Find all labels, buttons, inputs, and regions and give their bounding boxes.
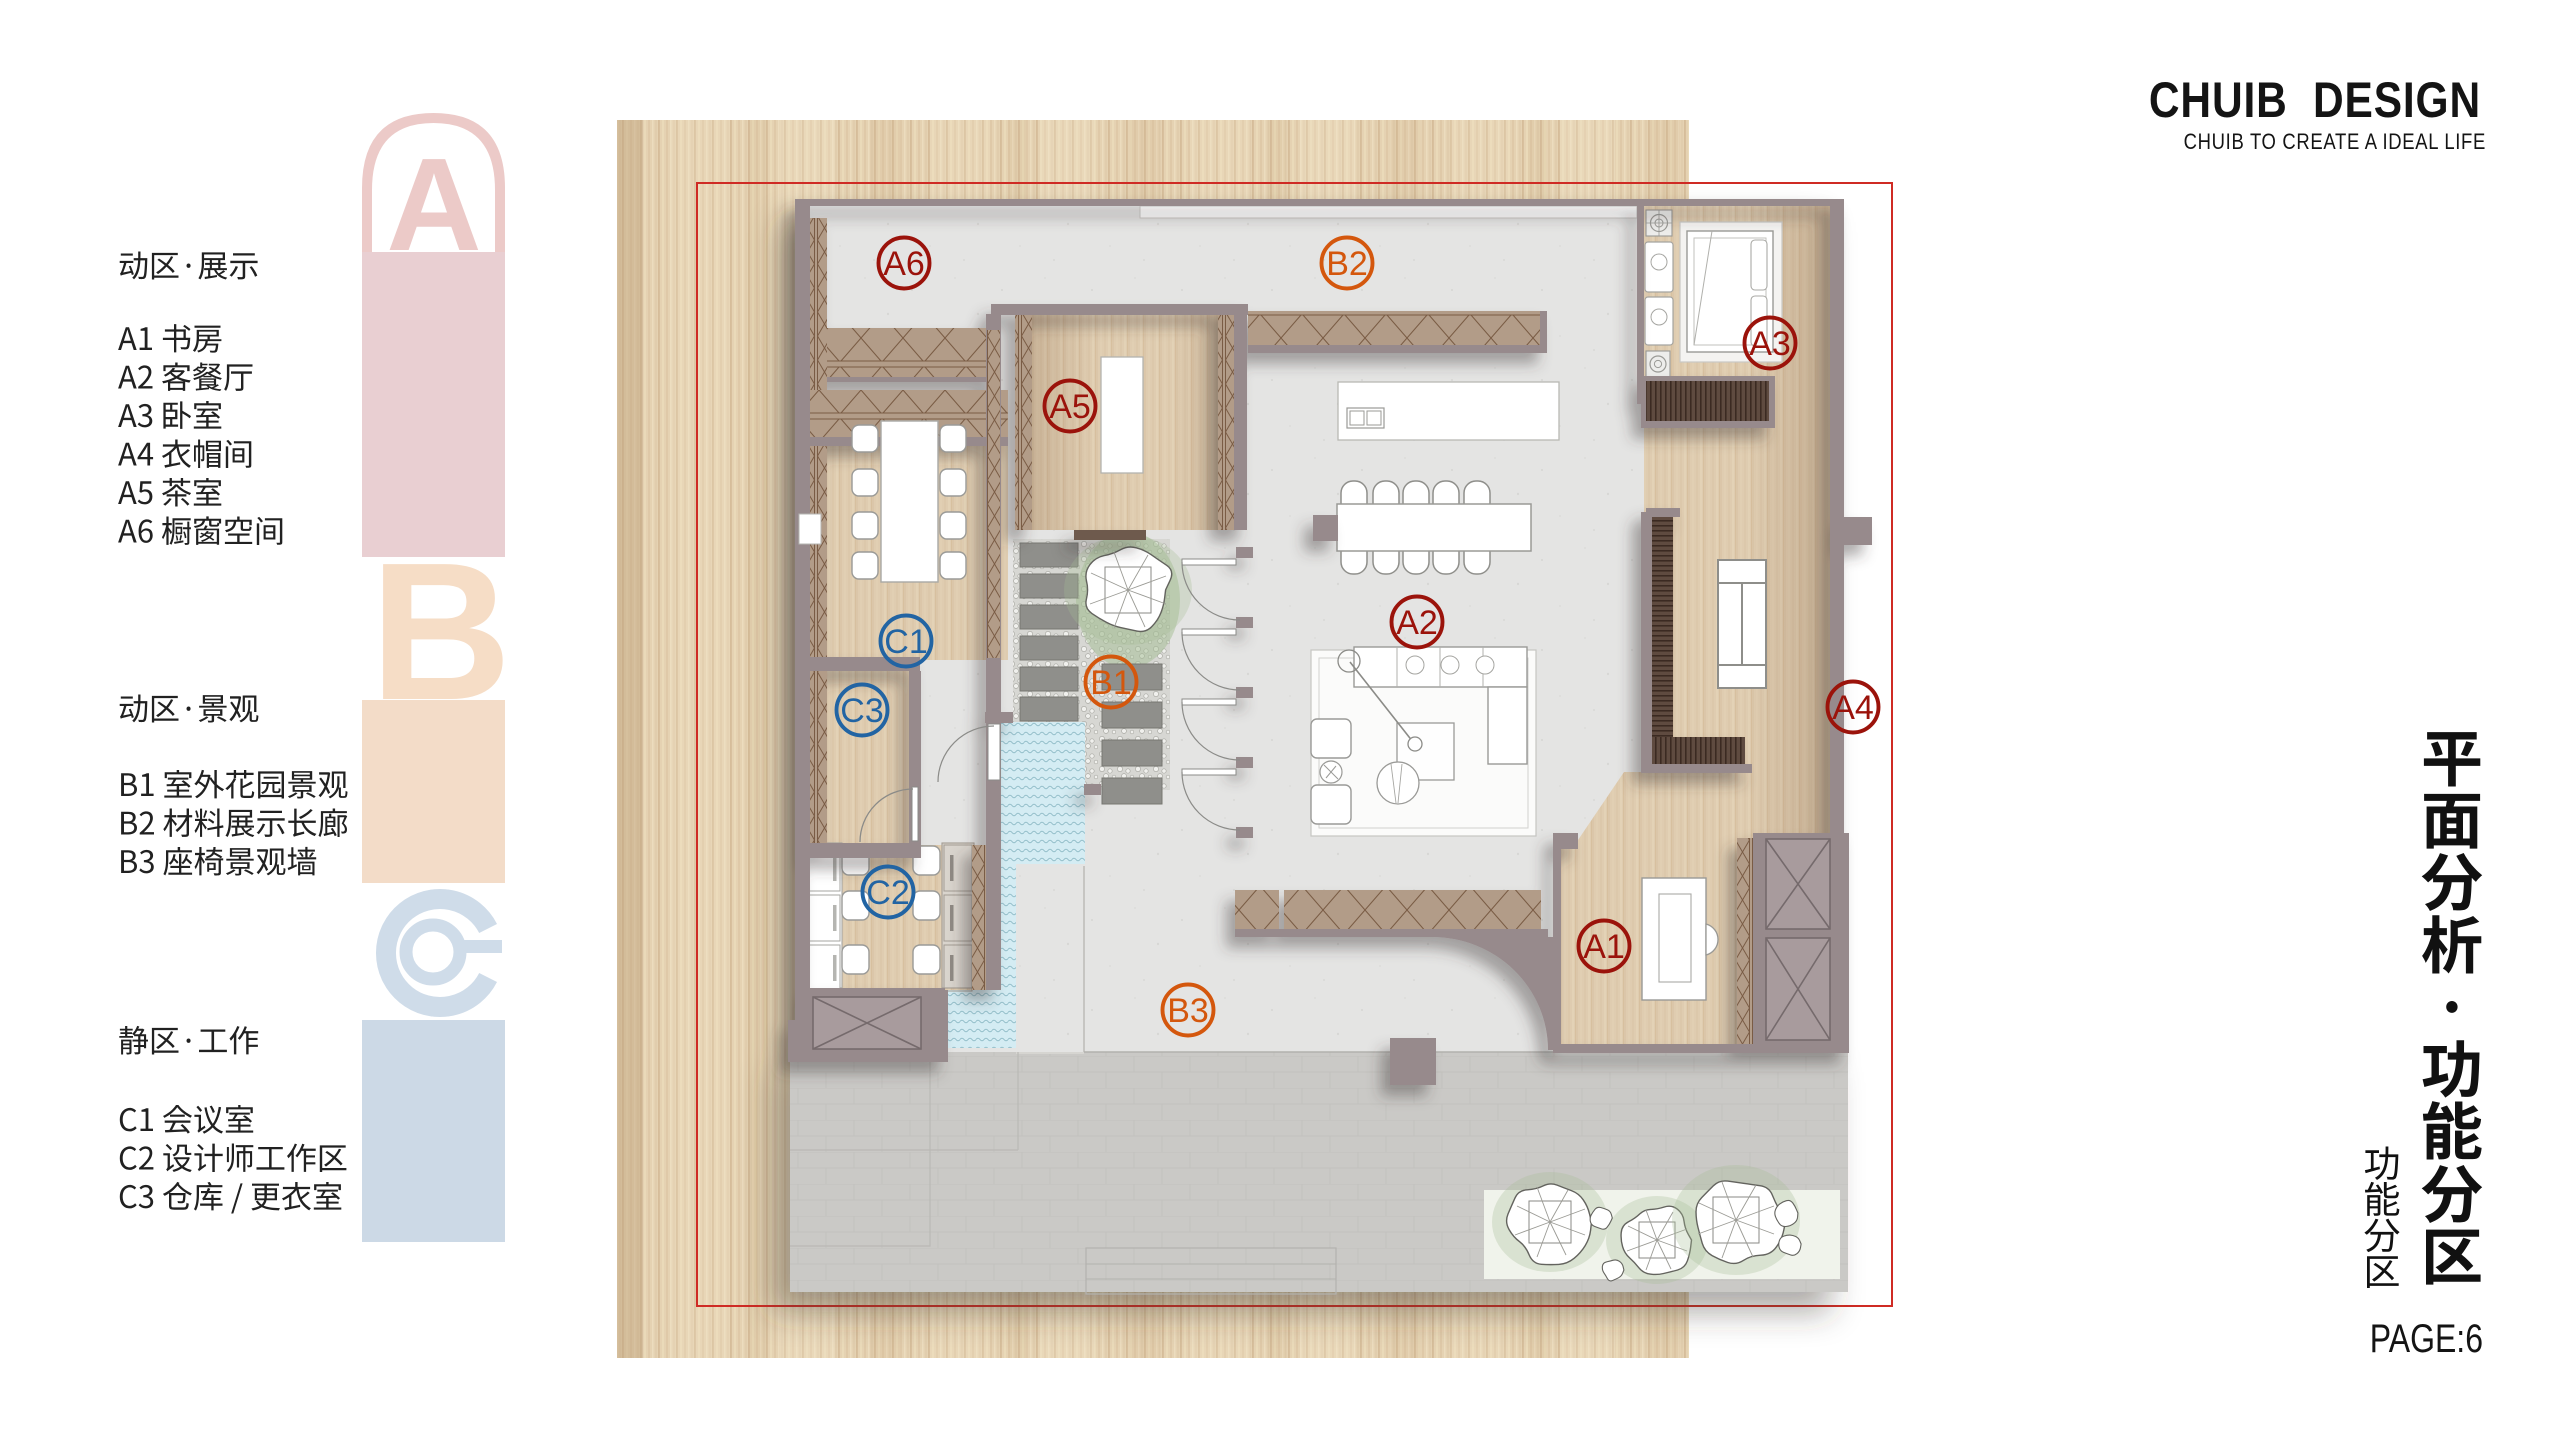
svg-text:C1: C1 bbox=[884, 623, 927, 661]
svg-text:C2: C2 bbox=[866, 874, 909, 912]
svg-text:PAGE:6: PAGE:6 bbox=[2370, 1316, 2483, 1361]
svg-text:C3: C3 bbox=[840, 692, 883, 730]
svg-text:CHUIB TO CREATE A IDEAL LIFE: CHUIB TO CREATE A IDEAL LIFE bbox=[2184, 131, 2486, 155]
svg-text:A1: A1 bbox=[1583, 928, 1625, 966]
svg-text:A4: A4 bbox=[1832, 689, 1874, 727]
svg-text:CHUIB DESIGN: CHUIB DESIGN bbox=[2149, 72, 2481, 128]
svg-text:A6: A6 bbox=[883, 245, 925, 283]
svg-text:A3: A3 bbox=[1749, 325, 1791, 363]
svg-text:A5: A5 bbox=[1049, 388, 1091, 426]
svg-text:B1: B1 bbox=[1090, 664, 1132, 702]
svg-text:B3: B3 bbox=[1167, 992, 1209, 1030]
svg-text:A2: A2 bbox=[1396, 604, 1438, 642]
svg-text:B2: B2 bbox=[1326, 245, 1368, 283]
